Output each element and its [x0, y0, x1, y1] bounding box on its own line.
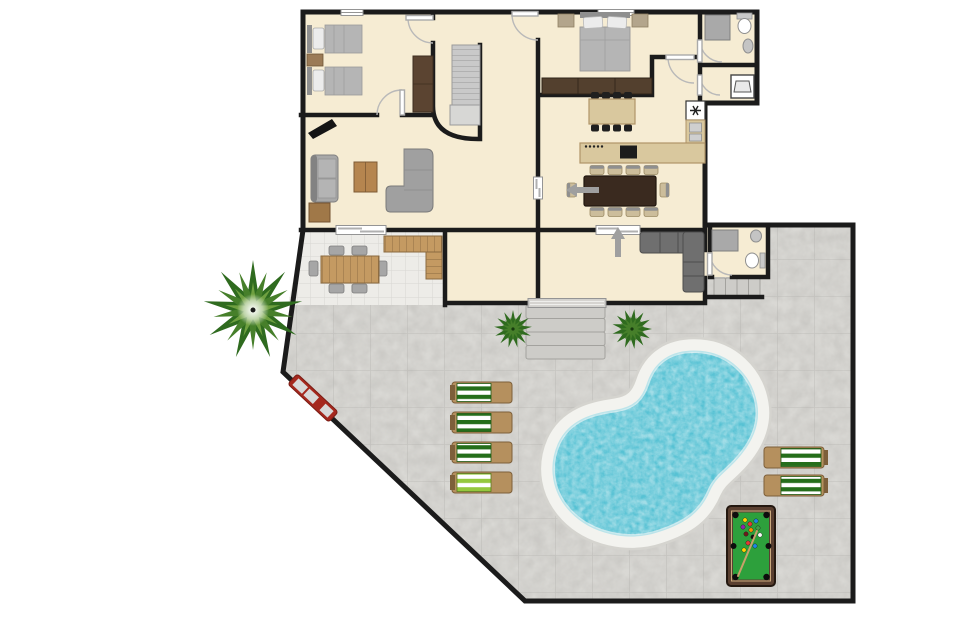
nightstand [307, 54, 323, 66]
door-leaf [708, 253, 713, 275]
door-leaf [698, 40, 703, 62]
nightstand-right [632, 14, 648, 27]
dining-chair [590, 166, 604, 175]
kitchen-counter [580, 143, 705, 163]
sun-lounger [450, 442, 512, 463]
toilet [737, 13, 752, 34]
nightstand-left [558, 14, 574, 27]
sun-lounger [450, 382, 512, 403]
sink [743, 39, 753, 53]
twin-bed-1 [307, 25, 362, 53]
patio-chair [329, 246, 344, 255]
sun-lounger [764, 475, 828, 496]
staircase [450, 45, 480, 125]
pool-table [727, 506, 775, 586]
patio-chair [329, 284, 344, 293]
washing-machine [731, 75, 754, 98]
patio-table [321, 256, 379, 283]
floor-plan-page [0, 0, 960, 640]
toilet [746, 253, 766, 268]
sink [751, 230, 762, 242]
wardrobe [413, 56, 433, 112]
slider-family-steps [528, 299, 606, 308]
kitchen-island [589, 99, 635, 124]
door-leaf [698, 75, 703, 95]
kitchen-sink [686, 120, 705, 143]
dining-chair [626, 166, 640, 175]
door-leaf [406, 16, 433, 21]
dresser [542, 78, 652, 94]
cooktop [620, 146, 637, 159]
slider-dining-left [534, 177, 543, 199]
fridge-freezer [686, 101, 705, 120]
patio-chair [309, 261, 318, 276]
laundry-room [731, 75, 754, 98]
sun-lounger [450, 472, 512, 493]
twin-bed-2 [307, 67, 362, 95]
patio-chair [352, 284, 367, 293]
side-table [309, 203, 330, 222]
shower [705, 15, 730, 40]
dining-chair [590, 208, 604, 217]
sun-lounger [764, 447, 828, 468]
dining-chair [644, 208, 658, 217]
window-bedroom [341, 10, 363, 16]
door-leaf [666, 55, 694, 60]
dining-chair [608, 166, 622, 175]
sofa [311, 155, 338, 202]
dining-chair [644, 166, 658, 175]
door-leaf [512, 12, 538, 17]
steps-side [714, 278, 760, 297]
dining-chair [660, 183, 669, 197]
dining-chair [626, 208, 640, 217]
coffee-table [354, 162, 377, 192]
patio-chair [352, 246, 367, 255]
shower [712, 230, 738, 251]
steps-main [526, 305, 605, 359]
dining-chair [608, 208, 622, 217]
door-leaf [400, 90, 405, 115]
floor-plan-canvas [0, 0, 960, 640]
slider-living-patio [336, 226, 386, 235]
sun-lounger [450, 412, 512, 433]
